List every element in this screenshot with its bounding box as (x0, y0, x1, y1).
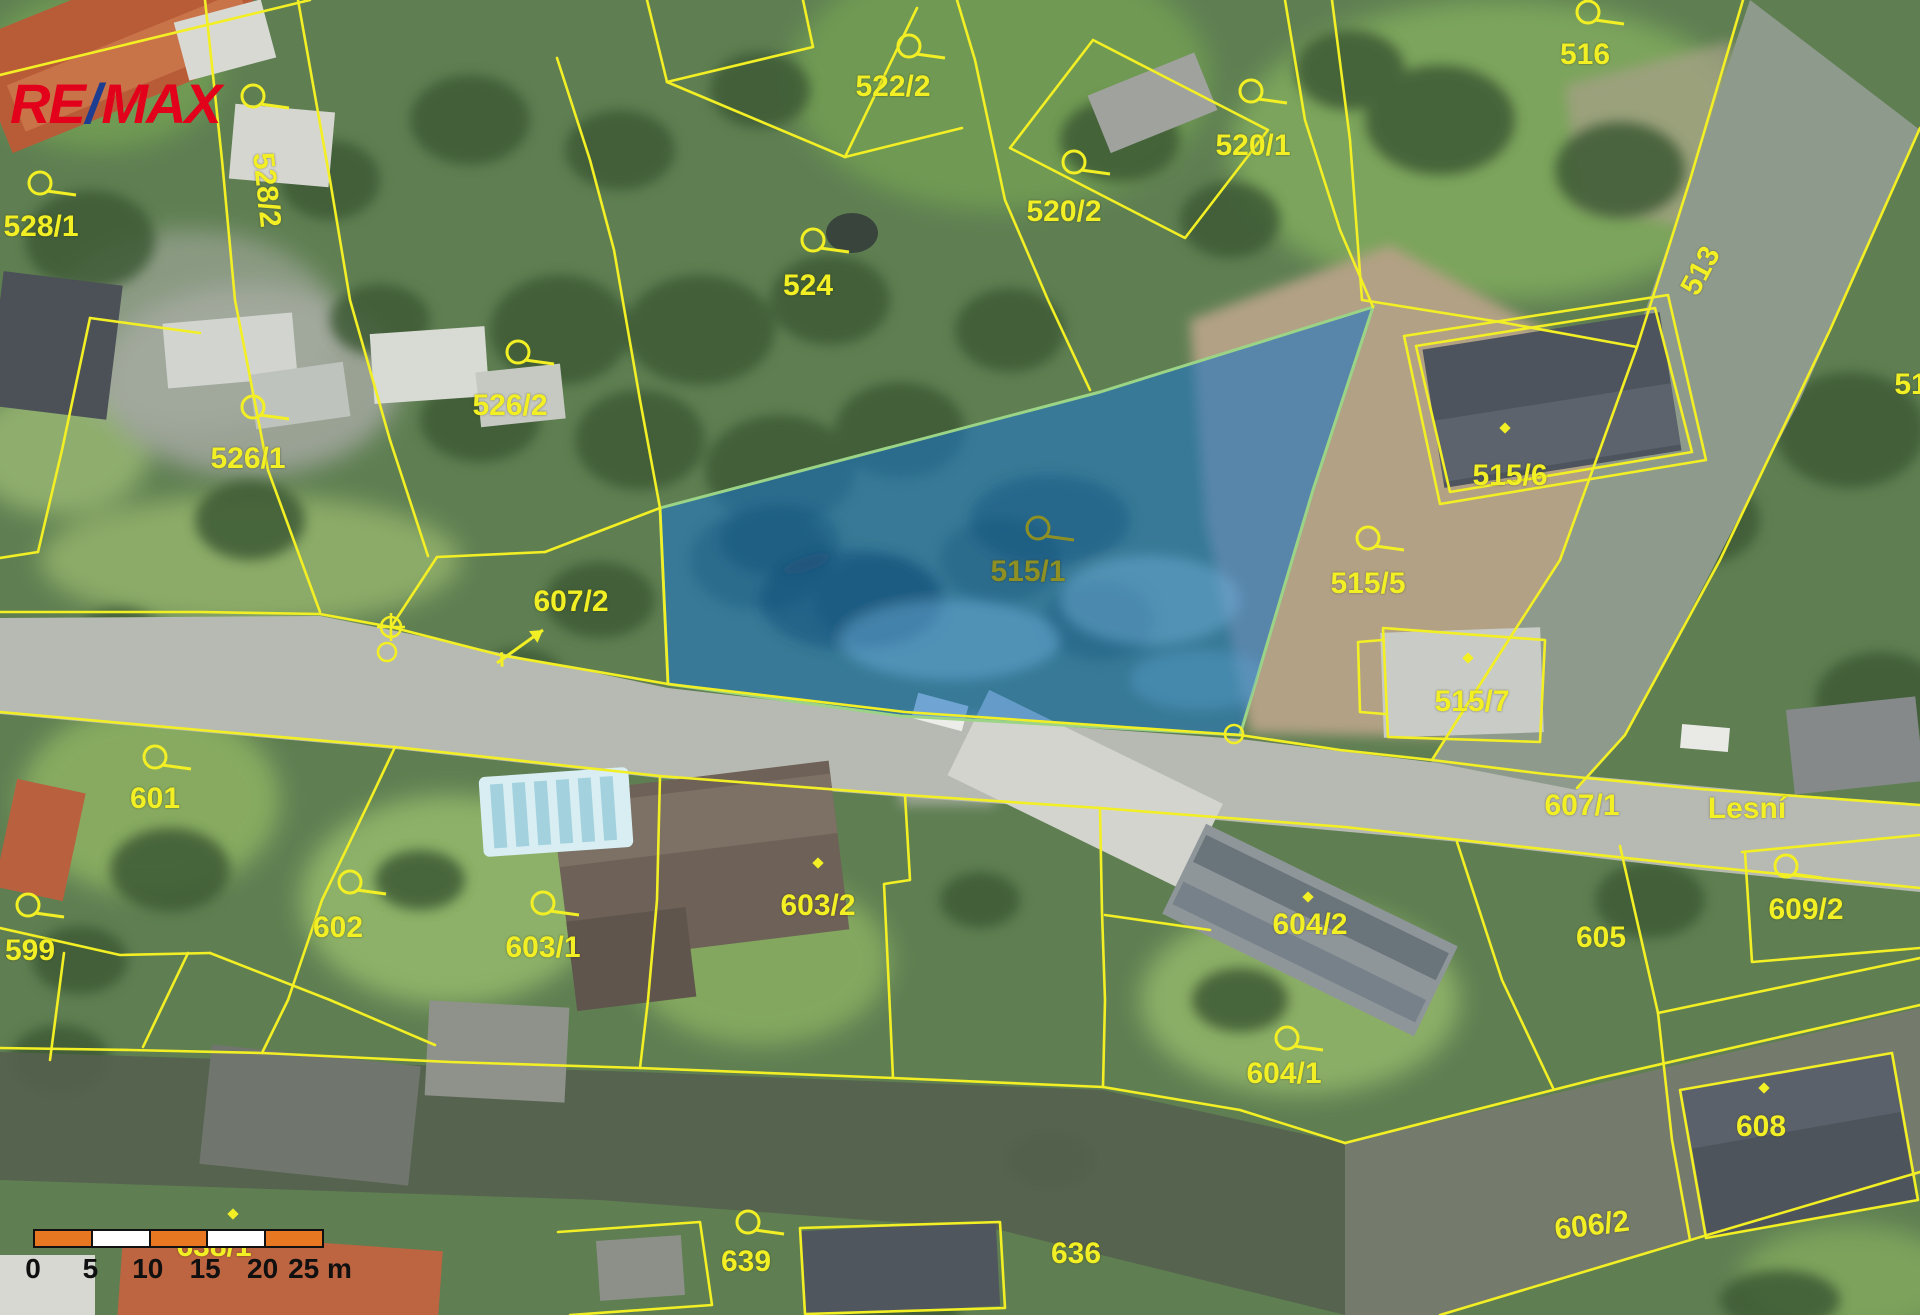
scale-bar-label-1: 5 (83, 1253, 99, 1285)
scale-bar-segment-4 (266, 1231, 322, 1246)
logo-slash: / (84, 72, 102, 135)
logo-re: RE (10, 72, 84, 135)
cadastral-map-image: 528/1528/2526/1526/2524522/2520/2520/151… (0, 0, 1920, 1315)
scale-bar-segment-0 (35, 1231, 93, 1246)
scale-bar-segment-2 (151, 1231, 209, 1246)
scale-bar-label-2: 10 (132, 1253, 163, 1285)
scale-bar-label-3: 15 (190, 1253, 221, 1285)
remax-logo: RE/MAX (10, 76, 220, 132)
swimming-pool (478, 767, 633, 857)
scale-bar-segment-3 (208, 1231, 266, 1246)
scale-bar-label-4: 20 (247, 1253, 278, 1285)
scale-bar-segment-1 (93, 1231, 151, 1246)
scale-bar-segments (33, 1229, 324, 1248)
scale-bar-label-0: 0 (25, 1253, 41, 1285)
aerial-photo-background (0, 0, 1920, 1315)
logo-max: MAX (101, 72, 219, 135)
scale-bar: 0510152025 m (33, 1229, 324, 1248)
scale-bar-label-5: 25 m (288, 1253, 352, 1285)
